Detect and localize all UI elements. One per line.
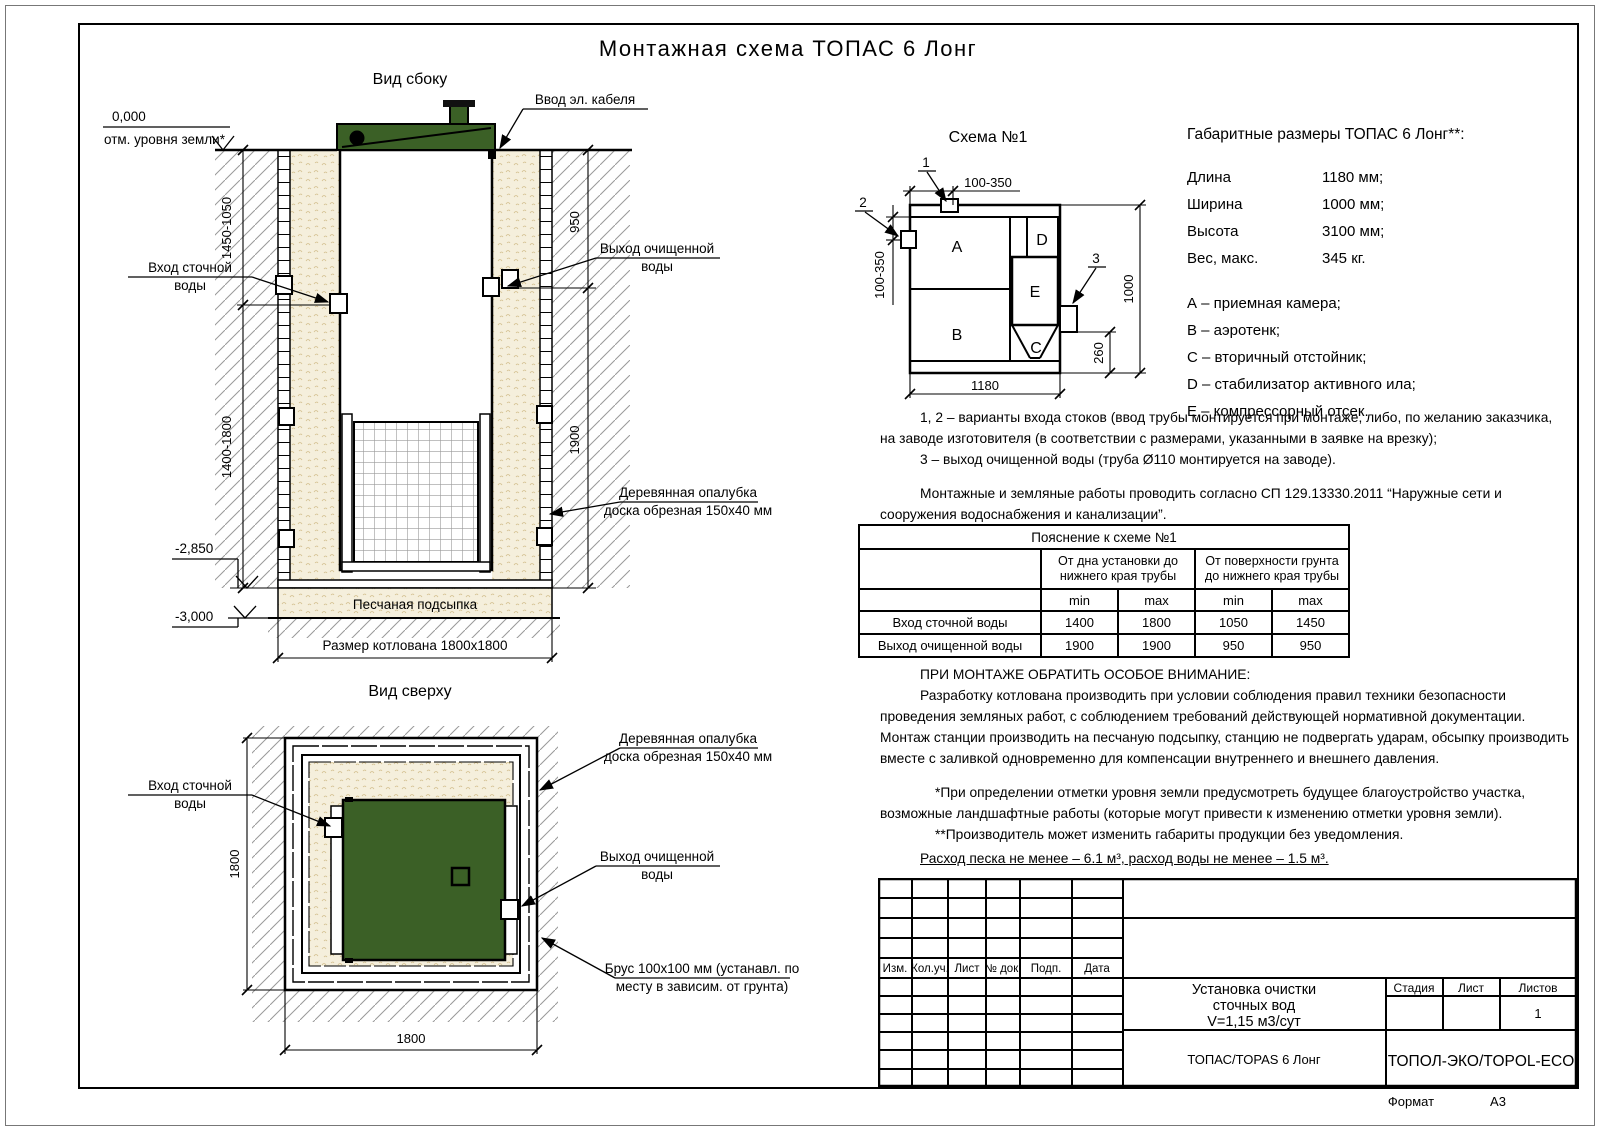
outlet-pipe-stub-top bbox=[501, 900, 518, 919]
doc-name-1: Установка очистки bbox=[1192, 982, 1316, 998]
col-koluch: Кол.уч. bbox=[911, 963, 949, 975]
table-title: Пояснение к схеме №1 bbox=[859, 525, 1349, 549]
sheets-label: Листов bbox=[1519, 981, 1558, 995]
beam-label-1: Брус 100х100 мм (устанавл. по bbox=[605, 961, 800, 976]
outlet-label-top-2: воды bbox=[641, 867, 673, 882]
lid-hatch bbox=[452, 868, 469, 885]
inlet-label-top-1: Вход сточной bbox=[148, 778, 232, 793]
schema1-plan bbox=[901, 199, 1077, 373]
cable-entry-label: Ввод эл. кабеля bbox=[535, 92, 635, 107]
beam-label-2: месту в зависим. от грунта) bbox=[616, 979, 788, 994]
legend-item: С – вторичный отстойник; bbox=[1187, 344, 1567, 371]
doc-name-2: сточных вод bbox=[1213, 998, 1296, 1014]
outlet-stub bbox=[1060, 306, 1077, 332]
table-row: Выход очищенной воды 1900 1900 950 950 bbox=[859, 634, 1349, 657]
dimensions-spec-block: Габаритные размеры ТОПАС 6 Лонг**: Длина… bbox=[1187, 126, 1567, 425]
col-group-2: От поверхности грунта до нижнего края тр… bbox=[1195, 549, 1349, 589]
callout-2: 2 bbox=[859, 195, 867, 210]
formwork-label-top-1: Деревянная опалубка bbox=[619, 731, 758, 746]
footnote-2: **Производитель может изменить габариты … bbox=[880, 824, 1573, 845]
dim-depth-upper: 1450-1050 bbox=[219, 197, 234, 259]
side-view-title: Вид сбоку bbox=[373, 71, 448, 88]
inlet-variant-notes: 1, 2 – варианты входа стоков (ввод трубы… bbox=[880, 407, 1568, 470]
col-list: Лист bbox=[955, 963, 981, 975]
compartment-d: D bbox=[1036, 232, 1048, 249]
formwork-label-2: доска обрезная 150х40 мм bbox=[604, 503, 772, 518]
tank-lid bbox=[337, 100, 496, 159]
sand-bed-label: Песчаная подсыпка bbox=[353, 597, 478, 612]
table-row: Вход сточной воды 1400 1800 1050 1450 bbox=[859, 611, 1349, 634]
top-view-plan bbox=[252, 726, 558, 1022]
vent-cap bbox=[450, 106, 468, 124]
format-label: Формат bbox=[1376, 1094, 1446, 1109]
formwork-label-1: Деревянная опалубка bbox=[619, 485, 758, 500]
inlet-pipe-stub bbox=[330, 294, 347, 313]
table-group-header: От дна установки до нижнего края трубы О… bbox=[859, 549, 1349, 589]
spec-row: Длина1180 мм; bbox=[1187, 164, 1567, 191]
note-outlet: 3 – выход очищенной воды (труба Ø110 мон… bbox=[880, 449, 1568, 470]
outlet-pipe-stub bbox=[483, 278, 499, 296]
spec-row: Вес, макс.345 кг. bbox=[1187, 245, 1567, 272]
side-view-drawing: Вид сбоку bbox=[90, 70, 790, 680]
footnotes-block: *При определении отметки уровня земли пр… bbox=[880, 782, 1573, 845]
compartment-a: A bbox=[952, 239, 963, 256]
stage-label: Стадия bbox=[1394, 981, 1435, 995]
compartment-c: C bbox=[1030, 340, 1042, 357]
dim-schema-outlet: 260 bbox=[1091, 342, 1106, 364]
explanation-table: Пояснение к схеме №1 От дна установки до… bbox=[858, 524, 1350, 658]
col-ndok: № док. bbox=[985, 963, 1022, 975]
inlet-variant-1 bbox=[941, 199, 958, 212]
dim-schema-right: 1000 bbox=[1121, 275, 1136, 304]
spec-row: Ширина1000 мм; bbox=[1187, 191, 1567, 218]
formwork-label-top-2: доска обрезная 150х40 мм bbox=[604, 749, 772, 764]
legend-item: D – стабилизатор активного ила; bbox=[1187, 371, 1567, 398]
compartment-b: B bbox=[952, 327, 963, 344]
attention-block: ПРИ МОНТАЖЕ ОБРАТИТЬ ОСОБОЕ ВНИМАНИЕ: Ра… bbox=[880, 664, 1573, 769]
attention-body: Разработку котлована производить при усл… bbox=[880, 685, 1573, 769]
dim-right-lower: 1900 bbox=[567, 426, 582, 455]
level-3000: -3,000 bbox=[175, 609, 213, 624]
inlet-variant-2 bbox=[901, 231, 916, 248]
dim-right-upper: 950 bbox=[567, 211, 582, 233]
top-view-title: Вид сверху bbox=[368, 683, 451, 700]
note-variants: 1, 2 – варианты входа стоков (ввод трубы… bbox=[880, 407, 1568, 449]
page-title: Монтажная схема ТОПАС 6 Лонг bbox=[388, 36, 1188, 62]
ground-level-caption: отм. уровня земли* bbox=[104, 132, 226, 147]
sand-consumption-note: Расход песка не менее – 6.1 м³, расход в… bbox=[920, 851, 1329, 866]
compartment-legend: А – приемная камера; В – аэротенк; С – в… bbox=[1187, 290, 1567, 425]
schema1-title: Схема №1 bbox=[949, 129, 1028, 146]
col-podp: Подп. bbox=[1031, 963, 1062, 975]
outlet-label-2: воды bbox=[641, 259, 673, 274]
format-value: А3 bbox=[1478, 1094, 1518, 1109]
legend-item: В – аэротенк; bbox=[1187, 317, 1567, 344]
legend-item: А – приемная камера; bbox=[1187, 290, 1567, 317]
dim-schema-top: 100-350 bbox=[964, 175, 1012, 190]
tank-top bbox=[343, 800, 505, 960]
tank-section bbox=[340, 150, 492, 572]
drawing-sheet: Монтажная схема ТОПАС 6 Лонг Вид сбо bbox=[0, 0, 1600, 1131]
dim-top-side: 1800 bbox=[227, 850, 242, 879]
table-minmax-header: min max min max bbox=[859, 589, 1349, 611]
col-data: Дата bbox=[1084, 963, 1110, 975]
sheets-value: 1 bbox=[1534, 1006, 1541, 1021]
inlet-label-1: Вход сточной bbox=[148, 260, 232, 275]
callout-1: 1 bbox=[922, 155, 930, 170]
dim-depth-lower: 1400-1800 bbox=[219, 416, 234, 478]
product-name: ТОПАС/TOPAS 6 Лонг bbox=[1187, 1052, 1320, 1067]
outlet-label-1: Выход очищенной bbox=[600, 241, 714, 256]
dim-schema-bottom: 1180 bbox=[971, 378, 999, 393]
sheet-label: Лист bbox=[1458, 981, 1485, 995]
cable-entry-point bbox=[488, 150, 496, 159]
inlet-label-2: воды bbox=[174, 278, 206, 293]
compartment-e: E bbox=[1030, 284, 1041, 301]
dim-schema-left: 100-350 bbox=[872, 251, 887, 299]
footnote-1: *При определении отметки уровня земли пр… bbox=[880, 782, 1573, 824]
title-block: Изм. Кол.уч. Лист № док. Подп. Дата Стад… bbox=[878, 878, 1577, 1087]
attention-title: ПРИ МОНТАЖЕ ОБРАТИТЬ ОСОБОЕ ВНИМАНИЕ: bbox=[880, 664, 1573, 685]
top-view-drawing: Вид сверху 1800 1800 bbox=[120, 676, 820, 1076]
callout-3: 3 bbox=[1092, 251, 1100, 266]
pit-size-label: Размер котлована 1800х1800 bbox=[323, 638, 508, 653]
inlet-pipe-stub-top bbox=[325, 818, 342, 837]
schema1-drawing: Схема №1 A B C D E 1 2 3 bbox=[845, 125, 1180, 410]
level-2850: -2,850 bbox=[175, 541, 213, 556]
outlet-label-top-1: Выход очищенной bbox=[600, 849, 714, 864]
spec-title: Габаритные размеры ТОПАС 6 Лонг**: bbox=[1187, 126, 1567, 144]
spec-row: Высота3100 мм; bbox=[1187, 218, 1567, 245]
note-sp: Монтажные и земляные работы проводить со… bbox=[880, 483, 1568, 525]
col-group-1: От дна установки до нижнего края трубы bbox=[1041, 549, 1195, 589]
ground-level-value: 0,000 bbox=[112, 109, 146, 124]
company-name: ТОПОЛ-ЭКО/TOPOL-ECO bbox=[1388, 1053, 1575, 1070]
doc-name-3: V=1,15 м3/сут bbox=[1207, 1014, 1301, 1030]
inlet-label-top-2: воды bbox=[174, 796, 206, 811]
col-izm: Изм. bbox=[883, 963, 908, 975]
dim-top-bottom: 1800 bbox=[397, 1031, 426, 1046]
sp-norm-note: Монтажные и земляные работы проводить со… bbox=[880, 483, 1568, 525]
